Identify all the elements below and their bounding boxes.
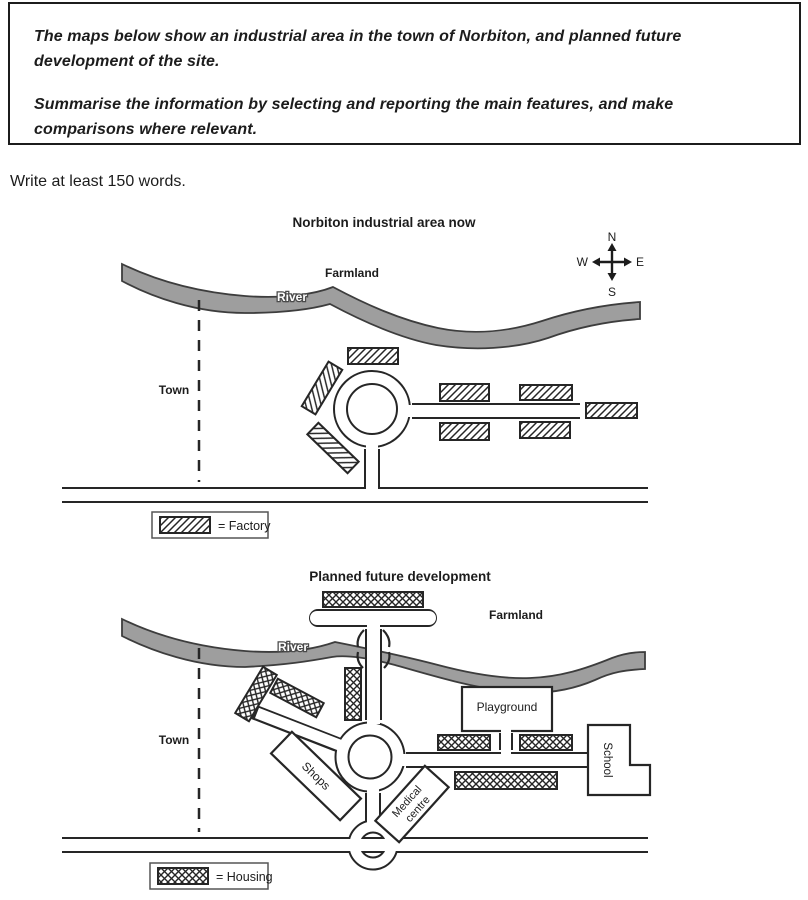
housing-block <box>438 735 490 750</box>
factory-block <box>440 423 489 440</box>
factory-block <box>520 422 570 438</box>
factory-block <box>520 385 572 400</box>
housing-block <box>270 679 323 718</box>
playground-label: Playground <box>477 700 538 714</box>
housing-block <box>323 592 423 607</box>
farmland-label: Farmland <box>489 608 543 622</box>
housing-block <box>345 668 361 720</box>
river-label: River <box>277 290 307 304</box>
factory-block <box>440 384 489 401</box>
compass-west-label: W <box>577 255 589 269</box>
river-label: River <box>278 640 308 654</box>
housing-block <box>520 735 572 750</box>
town-label: Town <box>159 383 189 397</box>
housing-block <box>455 772 557 789</box>
legend-swatch-factory-icon <box>160 517 210 533</box>
compass-icon: N S W E <box>577 230 644 299</box>
compass-east-label: E <box>636 255 644 269</box>
factory-block <box>586 403 637 418</box>
compass-north-label: N <box>608 230 617 244</box>
legend-factory: = Factory <box>152 512 271 538</box>
school-label: School <box>601 742 613 777</box>
farmland-label: Farmland <box>325 266 379 280</box>
map-now-title: Norbiton industrial area now <box>292 215 476 230</box>
town-label: Town <box>159 733 189 747</box>
map-future-title: Planned future development <box>309 569 491 584</box>
map-future: Planned future development <box>60 569 650 889</box>
legend-swatch-housing-icon <box>158 868 208 884</box>
school <box>588 725 650 795</box>
compass-south-label: S <box>608 285 616 299</box>
legend-housing: = Housing <box>150 863 273 889</box>
map-now: Norbiton industrial area now <box>60 215 650 538</box>
maps-canvas: Norbiton industrial area now <box>0 0 808 900</box>
factory-block <box>348 348 398 364</box>
legend-factory-label: = Factory <box>218 519 271 533</box>
legend-housing-label: = Housing <box>216 870 273 884</box>
